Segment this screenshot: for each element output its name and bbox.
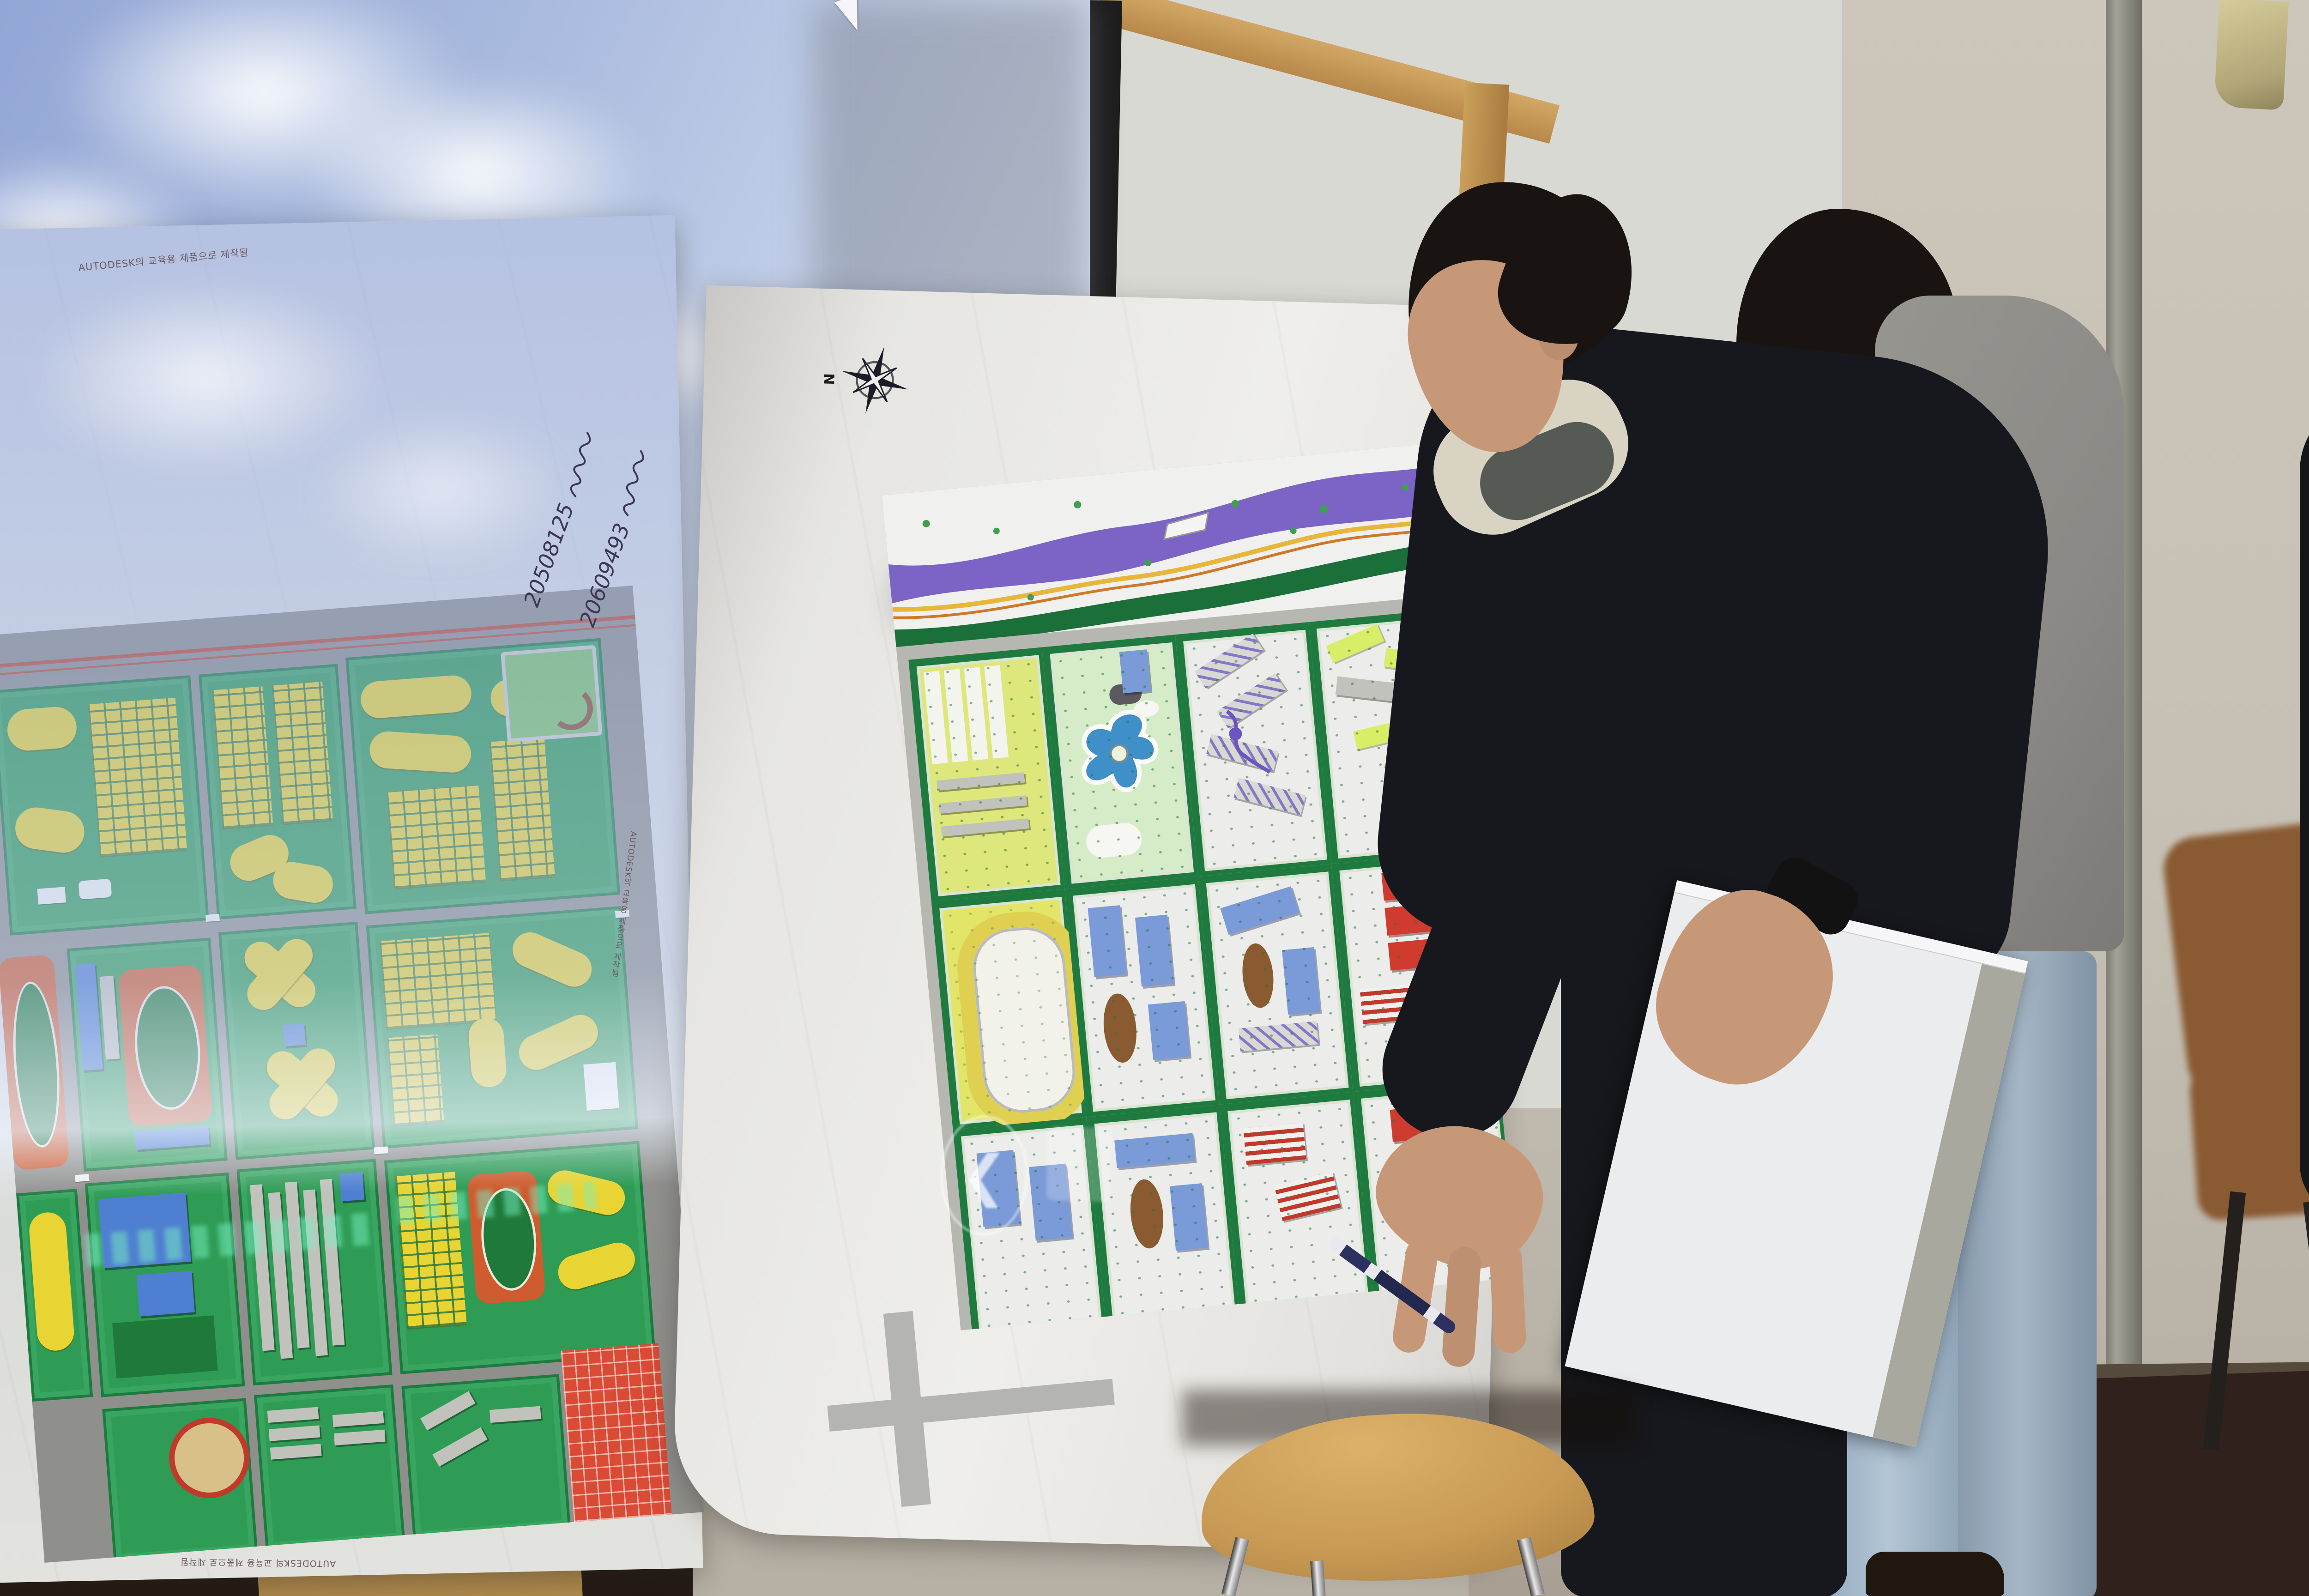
- road-sign: [374, 1146, 388, 1154]
- oval-field: [1100, 992, 1139, 1064]
- building-bar: [432, 1427, 487, 1467]
- building: [134, 1126, 210, 1150]
- left-site-plan-map: [0, 586, 704, 1563]
- map-block: [1220, 1092, 1377, 1319]
- housing-grid: [272, 682, 333, 824]
- map-block: [102, 1398, 258, 1562]
- building: [74, 963, 103, 1071]
- decor: [1074, 501, 1082, 508]
- wooden-chair-seat: [2188, 1055, 2309, 1221]
- map-block: [1175, 622, 1336, 879]
- map-block: [0, 675, 209, 936]
- map-block: [366, 906, 638, 1149]
- field: [112, 1315, 218, 1378]
- map-block: [236, 1159, 392, 1385]
- building-bar: [332, 1411, 384, 1427]
- plaza: [1085, 822, 1143, 859]
- courts: [583, 1062, 619, 1111]
- building: [1220, 886, 1299, 935]
- map-block: [199, 664, 357, 920]
- oval-field: [1240, 942, 1276, 1010]
- decor: [564, 432, 597, 496]
- building-bar: [267, 1407, 319, 1423]
- track-infield: [8, 980, 65, 1149]
- baseball-field: [501, 645, 602, 743]
- building: [1282, 947, 1320, 1015]
- building: [1135, 915, 1174, 987]
- road-extension: [827, 1379, 1115, 1432]
- projected-ui-ghost: [1046, 1126, 1112, 1202]
- building-bar: [937, 772, 1025, 791]
- greenhouse-row: [964, 667, 989, 760]
- map-block: [85, 1173, 245, 1397]
- map-block: [16, 1189, 93, 1402]
- compass-north-label: N: [822, 373, 838, 385]
- housing-loop: [28, 1211, 75, 1352]
- right-poster: N SCALE 1/2000 0 100 250 500M: [672, 285, 1520, 1554]
- building: [1233, 778, 1306, 815]
- striped-building: [1274, 1172, 1341, 1221]
- building: [100, 976, 120, 1060]
- compass-rose-icon: [832, 338, 918, 423]
- map-block: [384, 1141, 656, 1374]
- decor: [922, 520, 930, 527]
- map-block-yellow: [908, 647, 1069, 905]
- assistant-shoe: [1866, 1552, 2004, 1596]
- building-bar: [939, 795, 1027, 814]
- map-block: [218, 922, 375, 1160]
- propeller-lake: [1067, 699, 1169, 814]
- map-block: [67, 937, 228, 1172]
- housing-grid: [489, 738, 555, 880]
- projected-cloud: [308, 411, 570, 569]
- greenhouse-row: [924, 671, 948, 764]
- housing-grid: [387, 1034, 444, 1125]
- building: [339, 1172, 364, 1202]
- map-block-yellow: [931, 889, 1090, 1132]
- oval-field: [1128, 1178, 1167, 1250]
- road-sign: [75, 1174, 89, 1182]
- housing-loop: [467, 1016, 508, 1088]
- track-infield: [131, 984, 205, 1112]
- building: [1239, 1021, 1319, 1052]
- stool-leg: [1310, 1560, 1326, 1596]
- housing-grid: [387, 785, 486, 889]
- sports-track: [118, 964, 213, 1127]
- building-bar: [334, 1430, 386, 1445]
- chevron-left-icon: ❮: [960, 1143, 1008, 1209]
- autodesk-edu-stamp-top: AUTODESK의 교육용 제품으로 제작됨: [78, 245, 249, 274]
- housing-loop: [270, 859, 336, 906]
- map-block: [345, 638, 620, 914]
- housing-loop: [6, 705, 78, 752]
- housing-grid: [88, 698, 187, 857]
- decor: [1227, 708, 1270, 776]
- map-block: [254, 1384, 405, 1551]
- building: [283, 1023, 306, 1046]
- building: [1170, 1183, 1208, 1251]
- map-block-park: [1042, 635, 1202, 892]
- building-bar: [270, 1444, 322, 1459]
- left-poster: AUTODESK의 교육용 제품으로 제작됨 AUTODESK의 교육용 제품으…: [0, 215, 703, 1583]
- road-sign: [206, 914, 220, 922]
- housing-loop: [554, 1239, 639, 1294]
- greenhouse-row: [984, 665, 1009, 758]
- building: [1119, 649, 1151, 693]
- finger: [1489, 1241, 1527, 1354]
- decor: [617, 450, 651, 515]
- striped-building: [1243, 1123, 1306, 1165]
- observer-dark-jacket: [2300, 397, 2309, 1219]
- court: [78, 879, 112, 900]
- building: [1148, 1001, 1190, 1060]
- housing-loop: [13, 805, 87, 855]
- ring-road-feature: [166, 1415, 253, 1501]
- building-bar: [269, 1425, 320, 1441]
- housing-loop: [359, 674, 472, 719]
- building-bar: [490, 1406, 541, 1423]
- commercial-red-block: [561, 1343, 672, 1522]
- purple-path: [1217, 702, 1280, 781]
- civic-building: [136, 1271, 195, 1317]
- compass-rose: N: [823, 344, 910, 416]
- building: [1114, 1133, 1195, 1168]
- autodesk-edu-stamp-bottom: AUTODESK의 교육용 제품으로 제작됨: [180, 1556, 336, 1571]
- greenhouse-row: [944, 669, 968, 762]
- decor: [841, 346, 909, 414]
- decor: [1228, 727, 1243, 741]
- housing-loop: [507, 927, 597, 992]
- projected-cloud: [29, 277, 384, 478]
- court: [37, 887, 66, 905]
- handwritten-name-scribble: [558, 428, 605, 501]
- field-arc: [548, 685, 594, 732]
- building-bar: [941, 818, 1029, 837]
- decor: [993, 527, 1000, 534]
- decor: [1110, 744, 1128, 762]
- map-block: [1064, 876, 1223, 1120]
- wall-fixture: [2214, 0, 2289, 110]
- building: [1195, 634, 1263, 689]
- map-block: [401, 1374, 571, 1540]
- building: [1088, 905, 1127, 977]
- building-bar: [420, 1391, 475, 1430]
- handwritten-name-scribble: [614, 448, 661, 521]
- classroom-presentation-photo: AUTODESK의 교육용 제품으로 제작됨 AUTODESK의 교육용 제품으…: [0, 0, 2309, 1596]
- building: [1326, 624, 1384, 663]
- sports-track: [0, 955, 70, 1171]
- housing-grid: [379, 933, 496, 1029]
- housing-grid: [212, 686, 273, 828]
- building: [1336, 676, 1397, 701]
- housing-loop: [369, 731, 472, 774]
- map-block: [1198, 864, 1357, 1107]
